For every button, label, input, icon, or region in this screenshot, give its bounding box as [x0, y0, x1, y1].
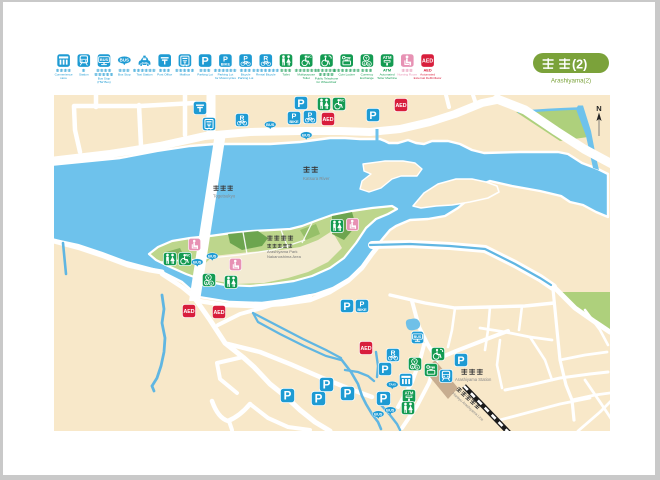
svg-text:Arashiyama Station: Arashiyama Station [455, 377, 492, 382]
svg-text:Station: Station [79, 72, 89, 76]
svg-text:for Wheelchair: for Wheelchair [317, 80, 337, 84]
svg-text:N: N [596, 104, 601, 113]
svg-text:Coin Locker: Coin Locker [338, 72, 355, 76]
svg-text:Bus Stop: Bus Stop [118, 72, 131, 76]
svg-text:Rental Bicycle: Rental Bicycle [256, 72, 276, 76]
svg-text:Arashiyama(2): Arashiyama(2) [551, 78, 591, 85]
svg-text:Katsura River: Katsura River [303, 176, 330, 181]
svg-text:(HW Bus): (HW Bus) [97, 80, 110, 84]
svg-text:Nakanoshima Area: Nakanoshima Area [267, 254, 302, 259]
svg-text:Parking Lot: Parking Lot [238, 76, 254, 80]
svg-text:store: store [60, 76, 67, 80]
svg-text:Post Office: Post Office [157, 72, 172, 76]
svg-text:Mailbox: Mailbox [180, 72, 191, 76]
svg-text:for Motorcycles: for Motorcycles [215, 76, 236, 80]
svg-text:Parking Lot: Parking Lot [197, 72, 213, 76]
svg-text:Exchange: Exchange [360, 76, 374, 80]
svg-text:Togetsukyo: Togetsukyo [213, 194, 236, 199]
svg-text:Toilet: Toilet [303, 76, 310, 80]
svg-text:External Defibrillator: External Defibrillator [414, 76, 442, 80]
svg-text:Toilet: Toilet [282, 72, 289, 76]
svg-text:(2): (2) [572, 58, 587, 72]
svg-text:Teller Machine: Teller Machine [377, 76, 397, 80]
svg-text:Taxi Station: Taxi Station [137, 72, 153, 76]
